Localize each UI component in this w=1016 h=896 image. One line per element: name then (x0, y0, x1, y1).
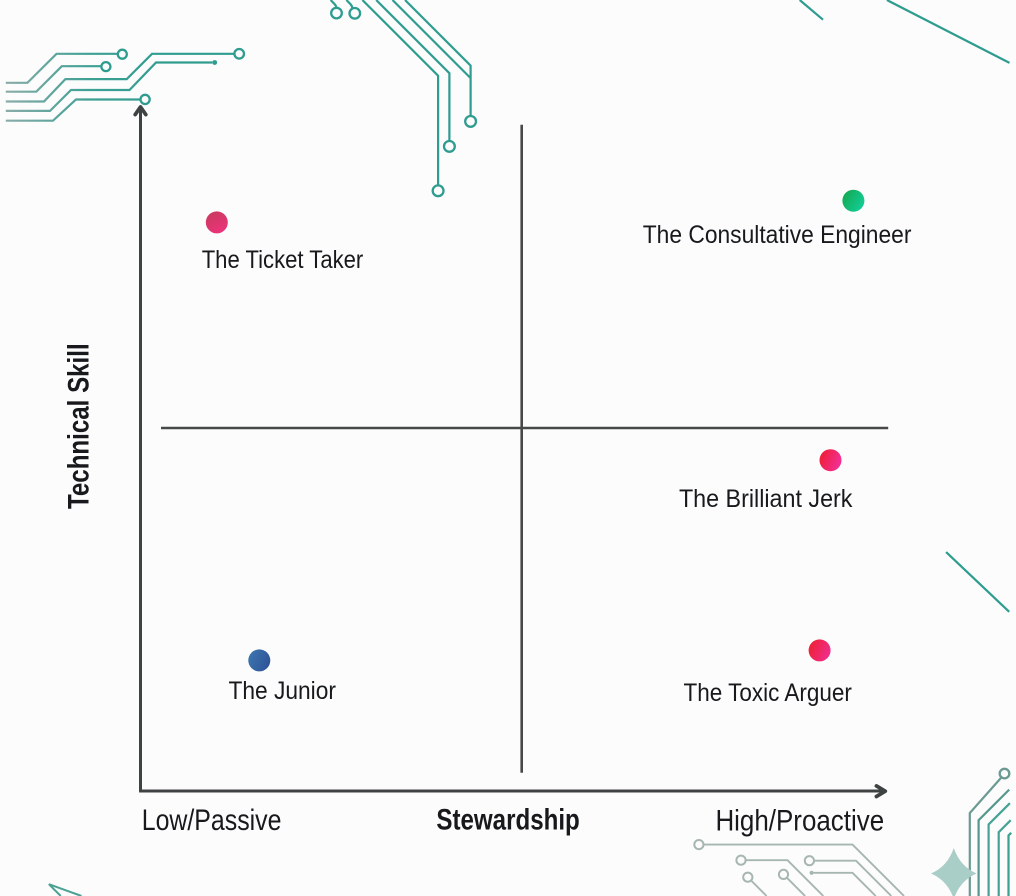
svg-text:The Junior: The Junior (228, 677, 336, 705)
svg-text:High/Proactive: High/Proactive (715, 805, 884, 838)
svg-text:The Toxic Arguer: The Toxic Arguer (684, 679, 852, 707)
svg-text:The Consultative Engineer: The Consultative Engineer (643, 221, 912, 249)
svg-text:Low/Passive: Low/Passive (142, 804, 282, 837)
svg-text:The Brilliant Jerk: The Brilliant Jerk (679, 485, 853, 513)
svg-text:Technical Skill: Technical Skill (63, 343, 96, 509)
svg-text:Stewardship: Stewardship (436, 804, 579, 837)
svg-text:The Ticket Taker: The Ticket Taker (202, 246, 364, 274)
